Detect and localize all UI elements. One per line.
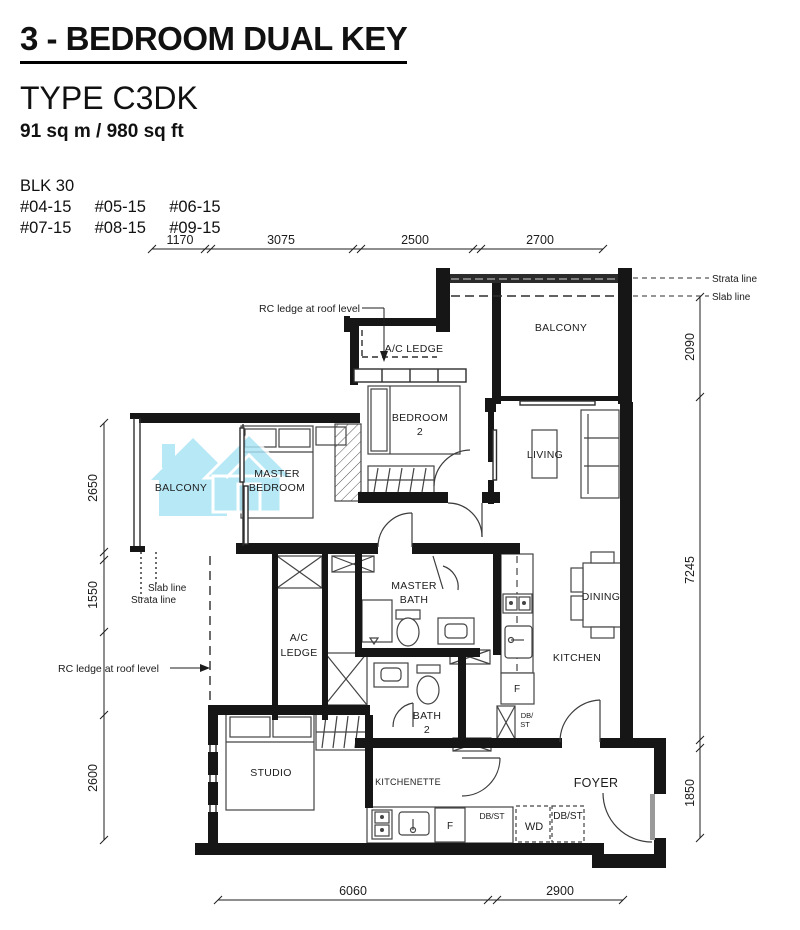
- label-fridge-kitchen: F: [514, 684, 520, 695]
- label-kitchenette: KITCHENETTE: [375, 777, 441, 787]
- dim-left-2600: 2600: [86, 764, 100, 792]
- label-master-bedroom-2: BEDROOM: [249, 482, 305, 494]
- label-dbst-foyer: DB/ST: [553, 811, 582, 822]
- label-ac-ledge-left-2: LEDGE: [280, 647, 317, 659]
- label-master-bath-2: BATH: [400, 594, 428, 606]
- strata-line-left-label: Strata line: [131, 595, 176, 606]
- label-bath2-1: BATH: [413, 710, 441, 722]
- dim-right-7245: 7245: [683, 556, 697, 584]
- strata-line-right-label: Strata line: [712, 274, 757, 285]
- arrowhead-right: [200, 664, 210, 672]
- label-bath2-2: 2: [424, 724, 430, 736]
- dim-left-2650: 2650: [86, 474, 100, 502]
- dim-bottom-2900: 2900: [546, 884, 574, 898]
- label-bedroom2-2: 2: [417, 426, 423, 438]
- master-bath-fixtures: [362, 600, 474, 646]
- label-ac-ledge-left-1: A/C: [290, 632, 309, 644]
- label-dining: DINING: [582, 591, 621, 603]
- label-dbst-kitchenette: DB/ST: [479, 811, 504, 821]
- bath2-fixtures: [374, 663, 440, 704]
- floorplan-drawing: A/C LEDGE BALCONY BEDROOM 2 LIVING BALCO…: [0, 0, 800, 930]
- label-dbst-kitchen-1: DB/: [521, 711, 534, 720]
- label-studio: STUDIO: [250, 767, 291, 779]
- dim-top-3075: 3075: [267, 233, 295, 247]
- label-bedroom2: BEDROOM: [392, 412, 448, 424]
- label-foyer: FOYER: [574, 776, 619, 790]
- label-living: LIVING: [527, 449, 563, 461]
- dim-top-2500: 2500: [401, 233, 429, 247]
- label-fridge-kitchenette: F: [447, 821, 453, 832]
- dim-right-2090: 2090: [683, 333, 697, 361]
- dim-top-1170: 1170: [167, 233, 194, 247]
- dim-top-2700: 2700: [526, 233, 554, 247]
- bedroom2-wardrobe: [368, 466, 434, 494]
- label-balcony-left: BALCONY: [155, 482, 207, 494]
- living-sofa: [581, 410, 619, 498]
- slab-line-left-label: Slab line: [148, 583, 187, 594]
- dim-left-1550: 1550: [86, 581, 100, 609]
- floorplan-page: 3 - BEDROOM DUAL KEY TYPE C3DK 91 sq m /…: [0, 0, 800, 930]
- rc-ledge-left-label: RC ledge at roof level: [58, 663, 159, 675]
- label-kitchen: KITCHEN: [553, 652, 601, 664]
- label-balcony-top: BALCONY: [535, 322, 587, 334]
- rc-ledge-top-label: RC ledge at roof level: [259, 303, 360, 315]
- label-master-bedroom-1: MASTER: [254, 468, 300, 480]
- studio-bed: [226, 714, 314, 810]
- label-ac-ledge-top: A/C LEDGE: [385, 343, 444, 355]
- dim-right-1850: 1850: [683, 779, 697, 807]
- master-wardrobe: [335, 424, 361, 501]
- label-washer-dryer: WD: [525, 821, 543, 833]
- dim-bottom-6060: 6060: [339, 884, 367, 898]
- slab-line-right-label: Slab line: [712, 292, 751, 303]
- kitchen-counter: [501, 554, 534, 704]
- label-master-bath-1: MASTER: [391, 580, 437, 592]
- label-dbst-kitchen-2: ST: [520, 720, 530, 729]
